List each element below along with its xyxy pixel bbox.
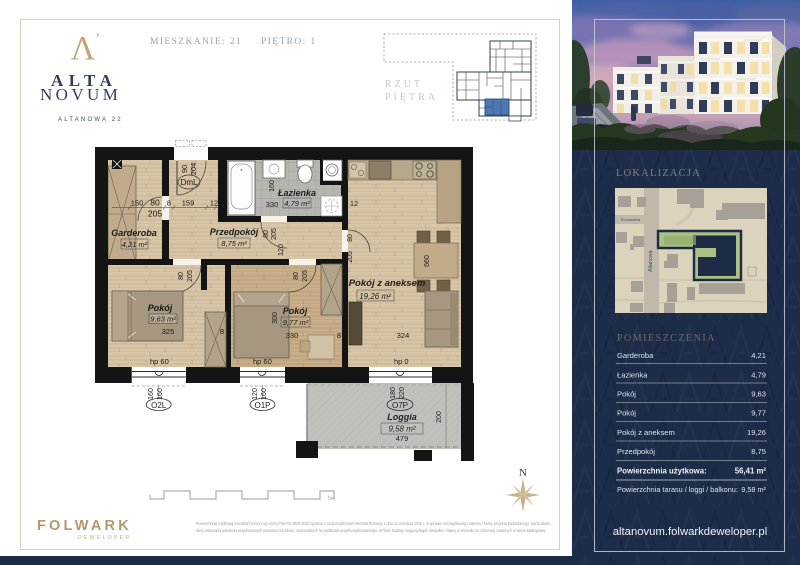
svg-text:’: ’: [95, 31, 100, 48]
svg-text:204: 204: [189, 163, 198, 176]
svg-text:160: 160: [148, 388, 155, 400]
svg-text:8: 8: [167, 199, 171, 208]
svg-text:12: 12: [350, 199, 358, 208]
svg-text:80: 80: [263, 230, 270, 238]
svg-text:FOLWARK: FOLWARK: [37, 518, 132, 534]
svg-text:160: 160: [261, 388, 268, 400]
svg-text:O1P: O1P: [254, 401, 270, 410]
svg-text:MIESZKANIE: 21: MIESZKANIE: 21: [150, 37, 242, 47]
svg-text:19,26: 19,26: [747, 428, 766, 437]
svg-text:altanovum.folwarkdeweloper.pl: altanovum.folwarkdeweloper.pl: [613, 526, 767, 538]
svg-text:80: 80: [347, 234, 354, 242]
svg-text:hp 0: hp 0: [394, 357, 409, 366]
svg-text:4,79 m²: 4,79 m²: [284, 199, 310, 208]
svg-text:160: 160: [269, 180, 276, 192]
svg-text:8: 8: [220, 327, 224, 336]
svg-text:150: 150: [131, 199, 144, 208]
svg-text:PIĘTRA: PIĘTRA: [385, 92, 438, 103]
svg-text:Przedpokój: Przedpokój: [210, 227, 259, 237]
svg-text:Pokój: Pokój: [617, 409, 636, 418]
svg-text:Pokój z aneksem: Pokój z aneksem: [349, 278, 426, 289]
svg-text:Łazienka: Łazienka: [277, 188, 316, 198]
svg-text:8,75: 8,75: [751, 447, 766, 456]
svg-text:Pokój: Pokój: [617, 390, 636, 399]
svg-text:Garderoba: Garderoba: [111, 228, 157, 238]
svg-text:660: 660: [424, 255, 431, 267]
svg-text:O7P: O7P: [392, 401, 408, 410]
svg-text:159: 159: [182, 199, 195, 208]
svg-text:9,58 m²: 9,58 m²: [388, 425, 415, 434]
svg-text:9,77 m²: 9,77 m²: [283, 318, 309, 327]
svg-text:hp 60: hp 60: [150, 357, 169, 366]
svg-text:DEWELOPER: DEWELOPER: [78, 535, 132, 541]
svg-text:205: 205: [148, 209, 162, 219]
svg-text:330: 330: [266, 200, 279, 209]
svg-text:160: 160: [157, 388, 164, 400]
svg-text:5m: 5m: [328, 496, 335, 502]
svg-text:180: 180: [390, 387, 397, 399]
svg-text:9,63 m²: 9,63 m²: [150, 315, 176, 324]
svg-text:Powierzchnia użytkowa:: Powierzchnia użytkowa:: [617, 467, 707, 476]
svg-text:200: 200: [436, 411, 443, 423]
svg-text:PIĘTRO: 1: PIĘTRO: 1: [261, 37, 317, 47]
svg-text:Altanowa: Altanowa: [648, 251, 654, 272]
svg-text:120: 120: [278, 244, 285, 256]
svg-text:80: 80: [150, 198, 160, 208]
svg-text:ALTANOWA 22: ALTANOWA 22: [58, 117, 123, 123]
svg-text:8: 8: [337, 331, 341, 340]
svg-text:205: 205: [302, 270, 309, 282]
svg-text:220: 220: [399, 387, 406, 399]
svg-text:324: 324: [397, 331, 410, 340]
svg-text:9,77: 9,77: [751, 409, 766, 418]
svg-text:56,41 m²: 56,41 m²: [735, 467, 767, 476]
svg-text:O2L: O2L: [151, 401, 167, 410]
svg-text:DmL: DmL: [181, 178, 198, 187]
svg-text:N: N: [519, 467, 527, 479]
svg-text:90: 90: [180, 165, 189, 173]
svg-text:Powierzchnia tarasu / loggi /: Powierzchnia tarasu / loggi / balkonu:: [617, 485, 738, 494]
svg-text:9,63: 9,63: [751, 390, 766, 399]
svg-text:479: 479: [396, 434, 409, 443]
svg-text:Łazienka: Łazienka: [617, 371, 648, 380]
svg-text:205: 205: [271, 228, 278, 240]
svg-text:Pokój z aneksem: Pokój z aneksem: [617, 428, 675, 437]
svg-text:Powierzchnię użytkową mieszkań: Powierzchnię użytkową mieszkań liczono w…: [196, 521, 550, 526]
svg-text:80: 80: [178, 272, 185, 280]
svg-text:325: 325: [162, 327, 175, 336]
svg-text:Λ: Λ: [71, 30, 96, 67]
svg-text:Pokój: Pokój: [148, 303, 173, 313]
svg-text:8,75 m²: 8,75 m²: [221, 239, 247, 248]
svg-text:4,21 m²: 4,21 m²: [122, 240, 148, 249]
svg-text:Loggia: Loggia: [387, 412, 417, 422]
svg-text:12: 12: [210, 199, 218, 208]
svg-text:Pokój: Pokój: [283, 306, 308, 316]
svg-text:9,58 m²: 9,58 m²: [741, 485, 766, 494]
svg-text:4,79: 4,79: [751, 371, 766, 380]
svg-text:NOVUM: NOVUM: [40, 85, 121, 104]
svg-text:POMIESZCZENIA: POMIESZCZENIA: [617, 333, 716, 344]
svg-text:330: 330: [286, 331, 299, 340]
svg-text:LOKALIZACJA: LOKALIZACJA: [616, 168, 701, 179]
svg-text:300: 300: [272, 312, 279, 324]
svg-text:służy wskazaniu położenia proj: służy wskazaniu położenia projektowanych…: [196, 528, 546, 533]
svg-text:205: 205: [347, 251, 354, 263]
svg-text:Komunalna: Komunalna: [621, 218, 641, 222]
svg-text:80: 80: [293, 272, 300, 280]
svg-text:205: 205: [187, 270, 194, 282]
svg-text:120: 120: [252, 388, 259, 400]
svg-text:Przedpokój: Przedpokój: [617, 447, 655, 456]
svg-text:4,21: 4,21: [751, 351, 766, 360]
svg-text:RZUT: RZUT: [385, 79, 423, 90]
svg-text:19,26 m²: 19,26 m²: [359, 292, 391, 301]
svg-text:Garderoba: Garderoba: [617, 351, 654, 360]
